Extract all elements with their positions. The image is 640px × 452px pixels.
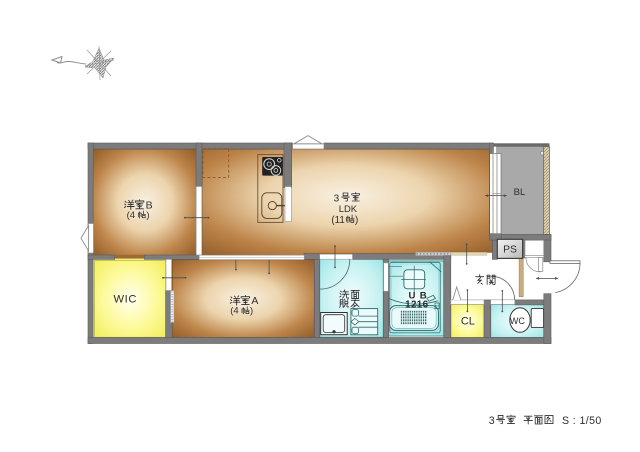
svg-text:(4: (4 bbox=[127, 210, 135, 221]
svg-text:LDK: LDK bbox=[339, 203, 358, 214]
svg-text:): ) bbox=[355, 215, 358, 226]
svg-text:1216: 1216 bbox=[405, 299, 429, 310]
svg-text:): ) bbox=[146, 210, 149, 221]
svg-text:(11: (11 bbox=[331, 215, 344, 226]
svg-text:(4: (4 bbox=[230, 306, 238, 317]
svg-text:WC: WC bbox=[510, 316, 525, 326]
svg-text:3: 3 bbox=[489, 415, 495, 427]
svg-text:BL: BL bbox=[514, 187, 526, 198]
svg-text:WIC: WIC bbox=[114, 294, 138, 306]
svg-text:S : 1/50: S : 1/50 bbox=[562, 415, 602, 427]
svg-text:): ) bbox=[250, 306, 253, 317]
svg-text:CL: CL bbox=[461, 316, 475, 328]
svg-text:PS: PS bbox=[503, 245, 517, 256]
